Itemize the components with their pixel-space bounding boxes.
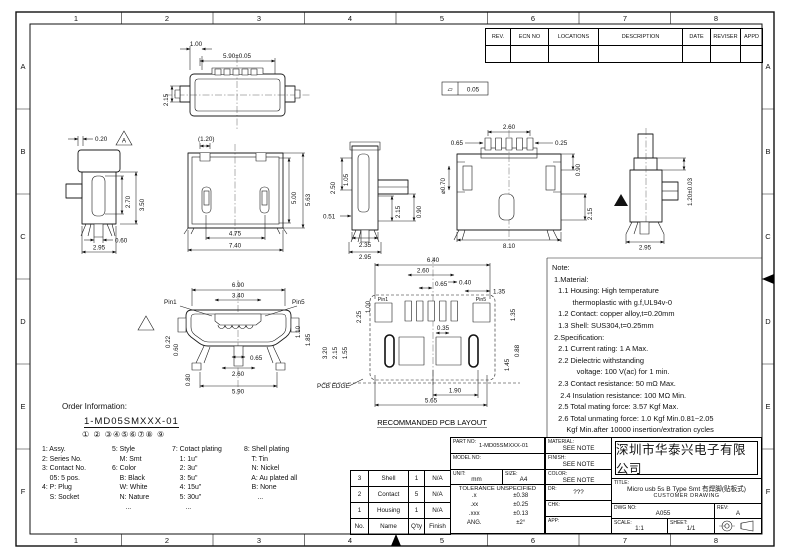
dim-label: 4.75 [229,231,242,238]
parts-list-table: 3Shell 1N/A 2Contact 5N/A 1Housing 1N/A … [350,470,451,535]
parts-row: 1Housing 1N/A [351,503,451,519]
parts-row: 3Shell 1N/A [351,471,451,487]
dim-label: 6.90 [232,282,245,289]
company-name: 深圳市华泰兴电子有限公司 [615,441,758,475]
index-triangle-icon [614,194,628,206]
parts-header-row: No.Name Q'tyFinish [351,519,451,535]
notes-block: Note: 1.Material: 1.1 Housing: High temp… [552,262,758,448]
dim-label: 1.35 [493,289,506,296]
pcb-pin1-label: Pin1 [378,297,388,303]
dim-label: 5.90 [232,389,245,396]
parallelogram-icon: ▱ [448,87,453,94]
third-angle-projection-icon [715,519,761,533]
size-cell: SIZE: A4 [502,469,545,485]
color-value: SEE NOTE [546,477,611,484]
back-view: 2.60 0.65 0.25 ⌀0.70 0.90 2.15 8.10 [440,124,594,250]
order-information: Order Information: 1-MD05SMXXX-01 ① ② ③④… [42,402,342,512]
tolerance-cell: TOLERANCE UNSPECIFIED .x±0.38 .xx±0.25 .… [450,484,545,534]
dim-label: 0.25 [555,140,568,147]
dim-label: 2.95 [639,245,652,252]
top-view: 1.00 5.90±0.05 2.15 ▱ 0.05 [163,41,488,130]
dim-label: 0.90 [575,163,582,176]
dim-label: 2.95 [93,245,106,252]
dim-label: 2.60 [232,371,245,378]
dim-label: 0.60 [115,238,128,245]
scale-value: 1:1 [612,525,667,532]
title-cell: TITLE: Micro usb 5s B Type Smt 有焊脚(贴板式) … [611,478,762,504]
sheet-cell: SHEET: 1/1 [667,518,715,534]
dim-label: 0.40 [459,280,472,287]
chk-cell: CHK: [545,500,612,517]
dim-label: 0.65 [435,281,448,288]
dim-label: 0.35 [437,325,450,332]
mating-face-view: Pin1 Pin5 6.90 3.40 0.22 0.60 0.80 1.10 … [138,280,312,396]
finish-cell: FINISH: SEE NOTE [545,453,612,470]
dim-label: 1.20±0.03 [687,178,694,206]
pin1-label: Pin1 [164,299,177,306]
dim-label: 2.70 [125,195,132,208]
dim-label: 2.15 [395,205,402,218]
order-digit-circles: ① ② ③④⑤⑥⑦⑧ ⑨ [82,430,342,439]
material-cell: MATERIAL: SEE NOTE [545,437,612,454]
size-value: A4 [503,476,544,483]
pin5-label: Pin5 [292,299,305,306]
material-value: SEE NOTE [546,445,611,452]
pcb-pin5-label: Pin5 [476,297,486,303]
dim-label: 2.95 [359,254,372,261]
dwg-no-cell: DWG NO: A055 [611,503,715,519]
dim-label: 1.35 [510,308,517,321]
dim-label: 2.35 [359,242,372,249]
dim-label: 1.00 [365,300,372,313]
dim-label: (1.20) [198,136,214,143]
dim-label: 1.55 [342,346,349,359]
dim-label: 0.60 [173,343,180,356]
dim-label: 1.85 [305,333,312,346]
dim-label: 2.50 [330,181,337,194]
rev-value: A [715,510,761,517]
dim-label: ⌀0.70 [440,177,447,194]
datum-flag-icon: A [116,131,132,145]
pcb-edge-label: PCB EDGE [317,383,350,390]
model-no-cell: MODEL NO: [450,453,545,470]
finish-value: SEE NOTE [546,461,611,468]
dim-label: 5.00 [291,191,298,204]
front-view: (1.20) 5.00 5.63 4.75 7.40 [184,136,312,252]
dim-label: 1.00 [190,41,203,48]
dim-label: 3.50 [139,198,146,211]
projection-symbol-cell [714,518,762,534]
part-no-value: 1-MD05SMXXX-01 [479,443,528,449]
unit-value: mm [451,476,502,483]
drawing-title: Micro usb 5s B Type Smt 有焊脚(贴板式) [612,483,761,493]
drawing-subtitle: CUSTOMER DRAWING [612,493,761,499]
dim-label: 1.45 [504,358,511,371]
dr-value: ??? [546,489,611,496]
dim-label: 0.22 [165,335,172,348]
dim-label: 7.40 [229,243,242,250]
dim-label: 0.65 [250,355,263,362]
drawing-sheet: 12 34 56 78 12 34 56 78 AB CD EF AB CD E… [0,0,790,558]
dim-label: 5.90±0.05 [223,53,251,60]
dim-label: 0.88 [514,344,521,357]
dim-label: 1.90 [449,388,462,395]
dwg-no-value: A055 [612,510,714,517]
warning-triangle-icon [138,316,154,330]
app-cell: APP: [545,516,612,534]
dim-label: 2.25 [356,310,363,323]
pcb-layout-caption: RECOMMANDED PCB LAYOUT [377,418,487,427]
order-info-heading: Order Information: [62,402,342,411]
dim-label: 0.51 [323,214,336,221]
dim-label: 8.10 [503,243,516,250]
dim-label: 0.80 [185,373,192,386]
dim-label: 2.15 [587,207,594,220]
company-cell: 深圳市华泰兴电子有限公司 [611,437,762,479]
order-part-number: 1-MD05SMXXX-01 [84,416,179,428]
dim-label: 1.10 [295,325,302,338]
svg-text:A: A [122,138,127,145]
parts-row: 2Contact 5N/A [351,487,451,503]
dim-label: 5.63 [305,193,312,206]
dim-label: 2.15 [163,93,170,106]
dim-label: 2.15 [332,346,339,359]
dim-label: 3.20 [322,346,329,359]
dim-label: 5.65 [425,398,438,405]
part-no-cell: PART NO: 1-MD05SMXXX-01 [450,437,545,454]
dim-label: 0.20 [95,136,108,143]
dim-label: 3.40 [232,293,245,300]
order-legend-col-3: 7: Cotact plating 1: 1u" 2: 3u" 3: 5u" 4… [172,445,244,512]
rev-cell: REV: A [714,503,762,519]
scale-cell: SCALE: 1:1 [611,518,668,534]
model-no-label: MODEL NO: [453,455,481,461]
pcb-layout-view: Pin1 Pin5 PCB EDGE 6.40 2.60 0.65 0.40 1… [317,257,521,428]
color-cell: COLOR: SEE NOTE [545,469,612,485]
order-legend-col-1: 1: Assy. 2: Series No. 3: Contact No. 05… [42,445,112,512]
order-legend-col-4: 8: Shell plating T: Tin N: Nickel A: Au … [244,445,332,512]
dim-label: 1.05 [343,173,350,186]
part-no-label: PART NO: [453,439,476,445]
dim-label: 2.60 [503,124,516,131]
dr-cell: DR: ??? [545,484,612,501]
order-legend-col-2: 5: Style M: Smt 6: Color B: Black W: Whi… [112,445,172,512]
dim-label: 0.65 [451,140,464,147]
flatness-value: 0.05 [467,87,480,94]
side-view: 2.50 1.05 0.51 2.15 0.90 2.35 2.95 [323,142,423,261]
dim-label: 2.60 [417,268,430,275]
flatness-callout: ▱ 0.05 [442,82,488,95]
side-section-view: 0.20 A 2.70 3.50 0.60 2.95 [66,131,146,254]
dim-label: 6.40 [427,257,440,264]
dim-label: 0.90 [416,205,423,218]
sheet-value: 1/1 [668,525,714,532]
side-profile-view: 1.20±0.03 2.95 [614,128,694,252]
unit-cell: UNIT: mm [450,469,503,485]
